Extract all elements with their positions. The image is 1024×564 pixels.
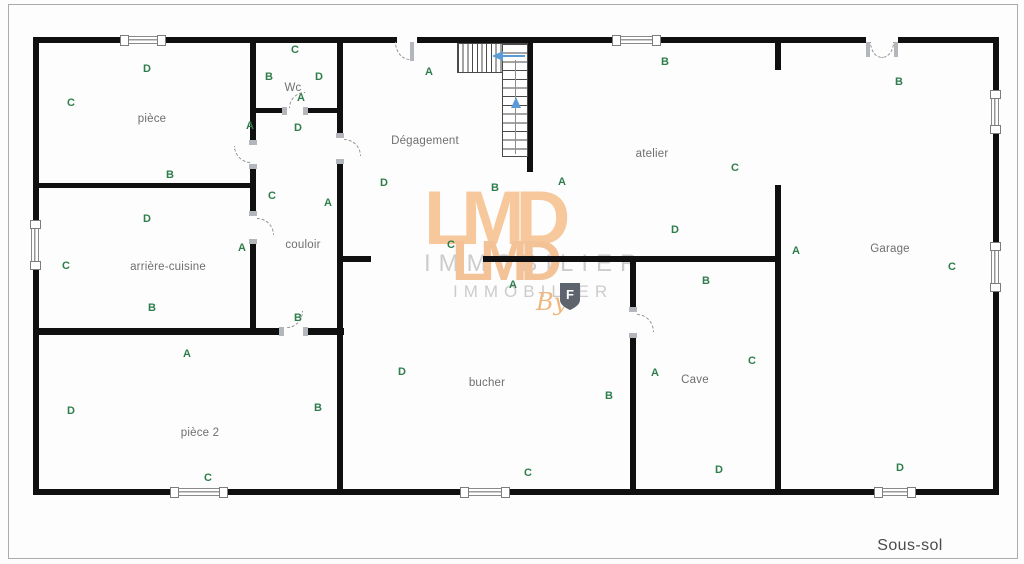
shield-logo-icon: F [558, 282, 582, 311]
wall-segment [33, 328, 284, 335]
direction-marker-b-garage: B [895, 76, 903, 88]
window [613, 36, 660, 44]
door-leaf [894, 42, 898, 57]
direction-marker-b-degagement: B [491, 182, 499, 194]
wall-segment [304, 108, 343, 113]
direction-marker-c-cave: C [748, 355, 756, 367]
window [875, 488, 915, 496]
wall-segment [337, 256, 371, 262]
direction-marker-b-arriere-cuisine: B [148, 302, 156, 314]
door-jamb [336, 159, 344, 164]
direction-marker-b-couloir: B [294, 312, 302, 324]
wall-segment [775, 185, 781, 495]
room-label-couloir: couloir [285, 239, 320, 251]
direction-marker-a-cave: A [651, 367, 659, 379]
direction-marker-a-piece: A [246, 120, 254, 132]
direction-marker-d-piece: D [143, 63, 151, 75]
room-label-atelier: atelier [636, 148, 669, 160]
door-jamb [629, 333, 637, 338]
wall-segment [250, 240, 256, 333]
door-jamb [629, 307, 637, 312]
direction-marker-b-wc: B [265, 71, 273, 83]
room-label-bucher: bucher [469, 377, 505, 389]
stair-direction-arrow-up-icon [511, 97, 521, 108]
room-label-degagement: Dégagement [391, 135, 459, 147]
direction-marker-d-garage: D [896, 462, 904, 474]
direction-marker-c-arriere-cuisine: C [62, 260, 70, 272]
wall-segment [630, 256, 636, 312]
window [461, 488, 509, 496]
door-jamb [249, 164, 257, 169]
door-jamb [303, 107, 308, 115]
direction-marker-d-atelier: D [671, 224, 679, 236]
wall-segment [775, 37, 781, 70]
window [171, 488, 227, 496]
direction-marker-c-wc: C [291, 44, 299, 56]
window [991, 91, 999, 133]
direction-marker-b-cave: B [702, 275, 710, 287]
direction-marker-d-couloir: D [294, 122, 302, 134]
direction-marker-d-wc: D [315, 71, 323, 83]
direction-marker-b-piece: B [166, 169, 174, 181]
direction-marker-a-atelier: A [558, 176, 566, 188]
door-leaf [410, 42, 414, 61]
window [991, 243, 999, 291]
direction-marker-a-degagement: A [425, 66, 433, 78]
floor-plan: LMD IMMOBILIER LMD IMMOBILIER By F [0, 0, 1024, 564]
door-jamb [279, 327, 284, 336]
room-label-cave: Cave [681, 374, 709, 386]
room-label-piece: pièce [138, 113, 167, 125]
door-jamb [249, 211, 257, 216]
shield-letter: F [566, 287, 574, 302]
wall-segment [630, 334, 636, 495]
direction-marker-b-bucher: B [605, 390, 613, 402]
direction-marker-d-cave: D [715, 464, 723, 476]
direction-marker-c-bucher: C [524, 467, 532, 479]
direction-marker-c-piece-2: C [204, 472, 212, 484]
stair-arrow-shaft [502, 55, 525, 57]
direction-marker-c-atelier: C [731, 162, 739, 174]
direction-marker-d-piece-2: D [67, 405, 75, 417]
direction-marker-a-garage: A [792, 245, 800, 257]
direction-marker-c-garage: C [948, 261, 956, 273]
wall-segment [304, 328, 344, 335]
direction-marker-a-piece-2: A [183, 348, 191, 360]
direction-marker-a-wc: A [297, 92, 305, 104]
direction-marker-c-degagement: C [447, 239, 455, 251]
direction-marker-c-piece: C [67, 97, 75, 109]
door-jamb [249, 239, 257, 244]
direction-marker-d-bucher: D [398, 366, 406, 378]
direction-marker-d-arriere-cuisine: D [143, 213, 151, 225]
wall-segment [337, 37, 343, 138]
direction-marker-a-bucher: A [509, 279, 517, 291]
door-jamb [249, 140, 257, 145]
door-jamb [282, 107, 287, 115]
room-label-garage: Garage [870, 243, 910, 255]
room-label-piece-2: pièce 2 [181, 427, 219, 439]
stair-direction-arrow-left-icon [492, 51, 503, 61]
door-jamb [303, 327, 308, 336]
direction-marker-b-atelier: B [661, 56, 669, 68]
door-jamb [336, 133, 344, 138]
window [121, 36, 165, 44]
window [31, 221, 39, 269]
wall-segment [898, 37, 999, 43]
direction-marker-a-couloir: A [324, 197, 332, 209]
floor-label: Sous-sol [877, 537, 942, 555]
wall-segment [33, 183, 256, 188]
direction-marker-b-piece-2: B [314, 402, 322, 414]
room-label-arriere-cuisine: arrière-cuisine [130, 261, 206, 273]
direction-marker-d-degagement: D [380, 177, 388, 189]
wall-segment [250, 165, 256, 216]
direction-marker-a-arriere-cuisine: A [238, 242, 246, 254]
direction-marker-c-couloir: C [268, 190, 276, 202]
